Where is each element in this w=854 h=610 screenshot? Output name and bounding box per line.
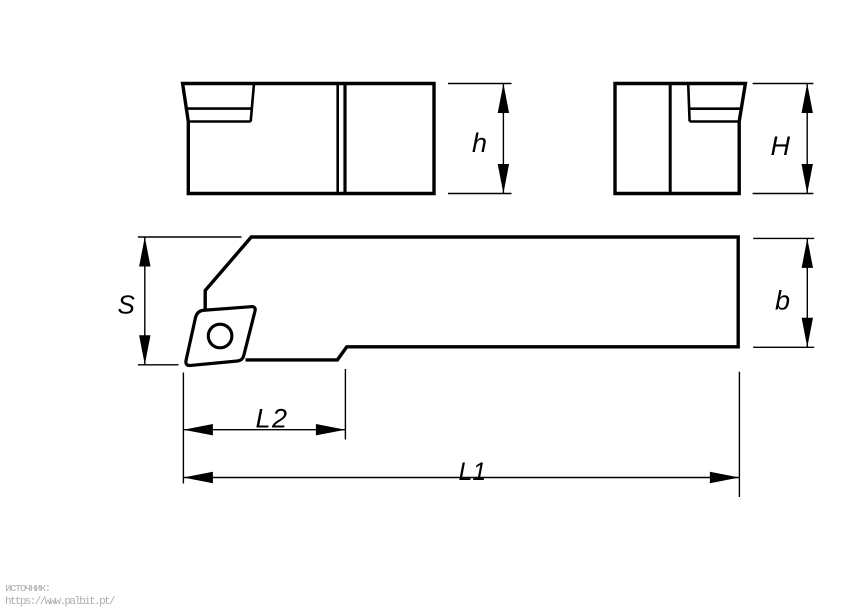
svg-text:L1: L1	[459, 458, 487, 486]
svg-text:L2: L2	[256, 404, 289, 434]
svg-text:H: H	[771, 131, 791, 161]
svg-text:S: S	[118, 290, 136, 320]
svg-text:b: b	[775, 286, 790, 316]
svg-text:h: h	[472, 128, 487, 158]
